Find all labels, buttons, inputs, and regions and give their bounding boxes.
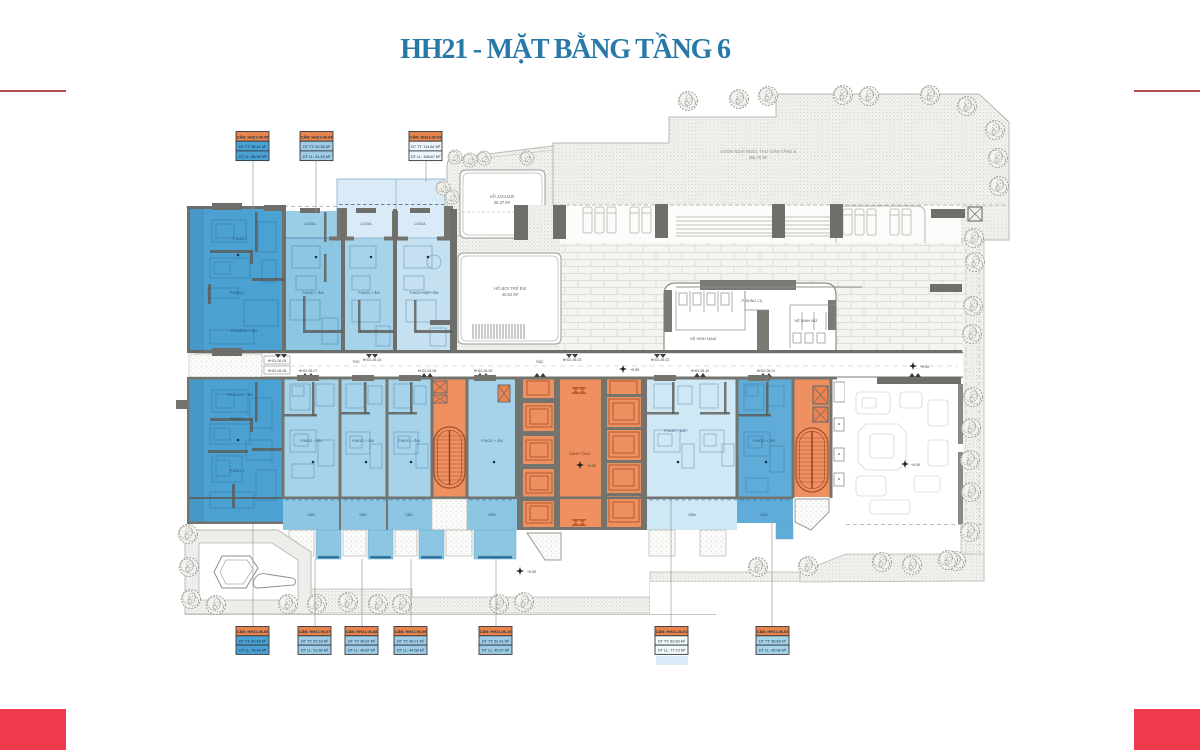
svg-text:CĂN: HH21-06-06: CĂN: HH21-06-06 [237, 629, 269, 634]
svg-text:P.NGỦ + ĂN: P.NGỦ + ĂN [302, 290, 323, 295]
svg-text:DT LL: 45.07 M²: DT LL: 45.07 M² [482, 648, 510, 653]
svg-text:HH21-06-03: HH21-06-03 [563, 358, 582, 362]
svg-text:VỆ SINH NAM: VỆ SINH NAM [690, 336, 716, 341]
svg-text:CĂN: HH21-06-07: CĂN: HH21-06-07 [299, 629, 331, 634]
svg-text:+0.00: +0.00 [911, 463, 920, 467]
svg-text:DT LL: 51.66 M²: DT LL: 51.66 M² [301, 648, 329, 653]
svg-text:HH21-06-08: HH21-06-08 [418, 369, 437, 373]
svg-text:SÂN: SÂN [405, 513, 413, 517]
svg-text:P.NGỦ + ĂN: P.NGỦ + ĂN [352, 438, 373, 443]
svg-text:CĂN: HH21-06-09: CĂN: HH21-06-09 [395, 629, 427, 634]
svg-text:CĂN: HH21-06-08: CĂN: HH21-06-08 [346, 629, 378, 634]
svg-text:DT LL: 45.87 M²: DT LL: 45.87 M² [348, 648, 376, 653]
svg-text:P.NGỦ 1: P.NGỦ 1 [233, 236, 248, 241]
svg-text:P.NGỦ + ĂN: P.NGỦ + ĂN [481, 438, 502, 443]
svg-text:CĂN: HH21-06-10: CĂN: HH21-06-10 [480, 629, 512, 634]
svg-text:DT LL: 51.29 M²: DT LL: 51.29 M² [303, 154, 331, 159]
svg-text:+0.00: +0.00 [920, 365, 929, 369]
svg-text:HH21-06-09: HH21-06-09 [474, 369, 493, 373]
svg-text:RÁC: RÁC [536, 360, 544, 364]
svg-text:HH21 - MẶT BẰNG TẦNG 6: HH21 - MẶT BẰNG TẦNG 6 [400, 33, 731, 65]
svg-text:SÂN: SÂN [359, 513, 367, 517]
svg-text:P.NGỦ+BẾP+ĂN: P.NGỦ+BẾP+ĂN [410, 290, 439, 295]
svg-text:SẢNH TẦNG: SẢNH TẦNG [569, 451, 591, 456]
svg-text:DT LL: 77.73 M²: DT LL: 77.73 M² [658, 648, 686, 653]
svg-text:P.KHÁCH + ĂN: P.KHÁCH + ĂN [227, 393, 253, 397]
svg-text:CĂN: HH21-06-02: CĂN: HH21-06-02 [757, 629, 789, 634]
svg-text:DT TT: 52.41 M²: DT TT: 52.41 M² [482, 638, 510, 643]
svg-text:CĂN: HH21-06-05: CĂN: HH21-06-05 [237, 134, 269, 139]
svg-text:P.NGỦ 2: P.NGỦ 2 [230, 416, 245, 421]
svg-text:DT TT: 98.41 M²: DT TT: 98.41 M² [239, 144, 267, 149]
svg-text:P.NGỦ + ĂN: P.NGỦ + ĂN [398, 438, 419, 443]
svg-text:HH21-06-02: HH21-06-02 [651, 358, 670, 362]
svg-text:CĂN: HH21-06-01: CĂN: HH21-06-01 [656, 629, 688, 634]
svg-text:HH21-06-05: HH21-06-05 [268, 359, 287, 363]
svg-text:LOGIA: LOGIA [361, 222, 373, 226]
svg-text:HỒ BƠI TRẺ EM: HỒ BƠI TRẺ EM [494, 286, 526, 291]
svg-text:HH21-06-04: HH21-06-04 [363, 358, 382, 362]
svg-text:DT TT: 114.84 M²: DT TT: 114.84 M² [411, 144, 441, 149]
svg-text:DT LL: 44.58 M²: DT LL: 44.58 M² [397, 648, 425, 653]
svg-text:CĂN: HH21-06-03: CĂN: HH21-06-03 [410, 134, 442, 139]
svg-text:DT LL: 86.96 M²: DT LL: 86.96 M² [239, 154, 267, 159]
svg-text:HH21-06-07: HH21-06-07 [299, 369, 318, 373]
svg-text:+0.00: +0.00 [527, 570, 536, 574]
svg-text:P.NGỦ 1: P.NGỦ 1 [230, 468, 245, 473]
svg-text:SÂN: SÂN [307, 513, 315, 517]
svg-text:DT TT: 58.85 M²: DT TT: 58.85 M² [759, 638, 787, 643]
svg-text:HH21-06-06: HH21-06-06 [268, 369, 287, 373]
svg-text:LOGIA: LOGIA [305, 222, 317, 226]
svg-text:SÂN: SÂN [488, 513, 496, 517]
svg-text:36.37 M²: 36.37 M² [494, 200, 511, 205]
svg-text:SÂN: SÂN [688, 513, 696, 517]
svg-text:P.NGỦ + BẾP: P.NGỦ + BẾP [664, 428, 688, 433]
svg-text:+0.00: +0.00 [630, 368, 639, 372]
svg-text:LOGIA: LOGIA [415, 222, 427, 226]
svg-text:DT TT: 83.83 M²: DT TT: 83.83 M² [658, 638, 686, 643]
svg-text:P.NGỦ + ĂN: P.NGỦ + ĂN [358, 290, 379, 295]
svg-text:DT TT: 84.43 M²: DT TT: 84.43 M² [239, 638, 267, 643]
svg-text:DT LL: 45.08 M²: DT LL: 45.08 M² [759, 648, 787, 653]
svg-text:HH21-06-10: HH21-06-10 [691, 369, 710, 373]
svg-text:THG: THG [352, 360, 360, 364]
svg-text:255.76 M²: 255.76 M² [749, 155, 768, 160]
svg-text:P.KHÁCH + ĂN: P.KHÁCH + ĂN [231, 329, 257, 333]
svg-text:P.NGỦ + ĂN: P.NGỦ + ĂN [300, 438, 321, 443]
svg-text:VỆ SINH NỮ: VỆ SINH NỮ [794, 318, 818, 323]
svg-text:HỒ JACUZZI: HỒ JACUZZI [490, 194, 515, 199]
svg-text:DT TT: 92.36 M²: DT TT: 92.36 M² [303, 144, 331, 149]
svg-text:CĂN: HH21-06-04: CĂN: HH21-06-04 [301, 134, 333, 139]
svg-text:P.NGỦ 2: P.NGỦ 2 [230, 290, 245, 295]
svg-text:DT LL: 108.67 M²: DT LL: 108.67 M² [411, 154, 441, 159]
svg-text:DT LL: 78.46 M²: DT LL: 78.46 M² [239, 648, 267, 653]
svg-text:DT TT: 46.71 M²: DT TT: 46.71 M² [397, 638, 425, 643]
svg-text:DT TT: 46.87 M²: DT TT: 46.87 M² [348, 638, 376, 643]
svg-text:HH21-06-01: HH21-06-01 [757, 369, 776, 373]
svg-text:P. DỤNG CỤ: P. DỤNG CỤ [742, 299, 763, 303]
svg-text:+0.00: +0.00 [587, 464, 596, 468]
svg-text:45.84 M²: 45.84 M² [502, 292, 519, 297]
svg-text:DT TT: 57.18 M²: DT TT: 57.18 M² [301, 638, 329, 643]
svg-text:SÂN: SÂN [760, 513, 768, 517]
svg-text:P.NGỦ + ĂN: P.NGỦ + ĂN [753, 438, 774, 443]
svg-text:VƯỜN NGHỈ NGƠI, THƯ GIÃN TẦNG: VƯỜN NGHỈ NGƠI, THƯ GIÃN TẦNG 6 [720, 149, 797, 154]
